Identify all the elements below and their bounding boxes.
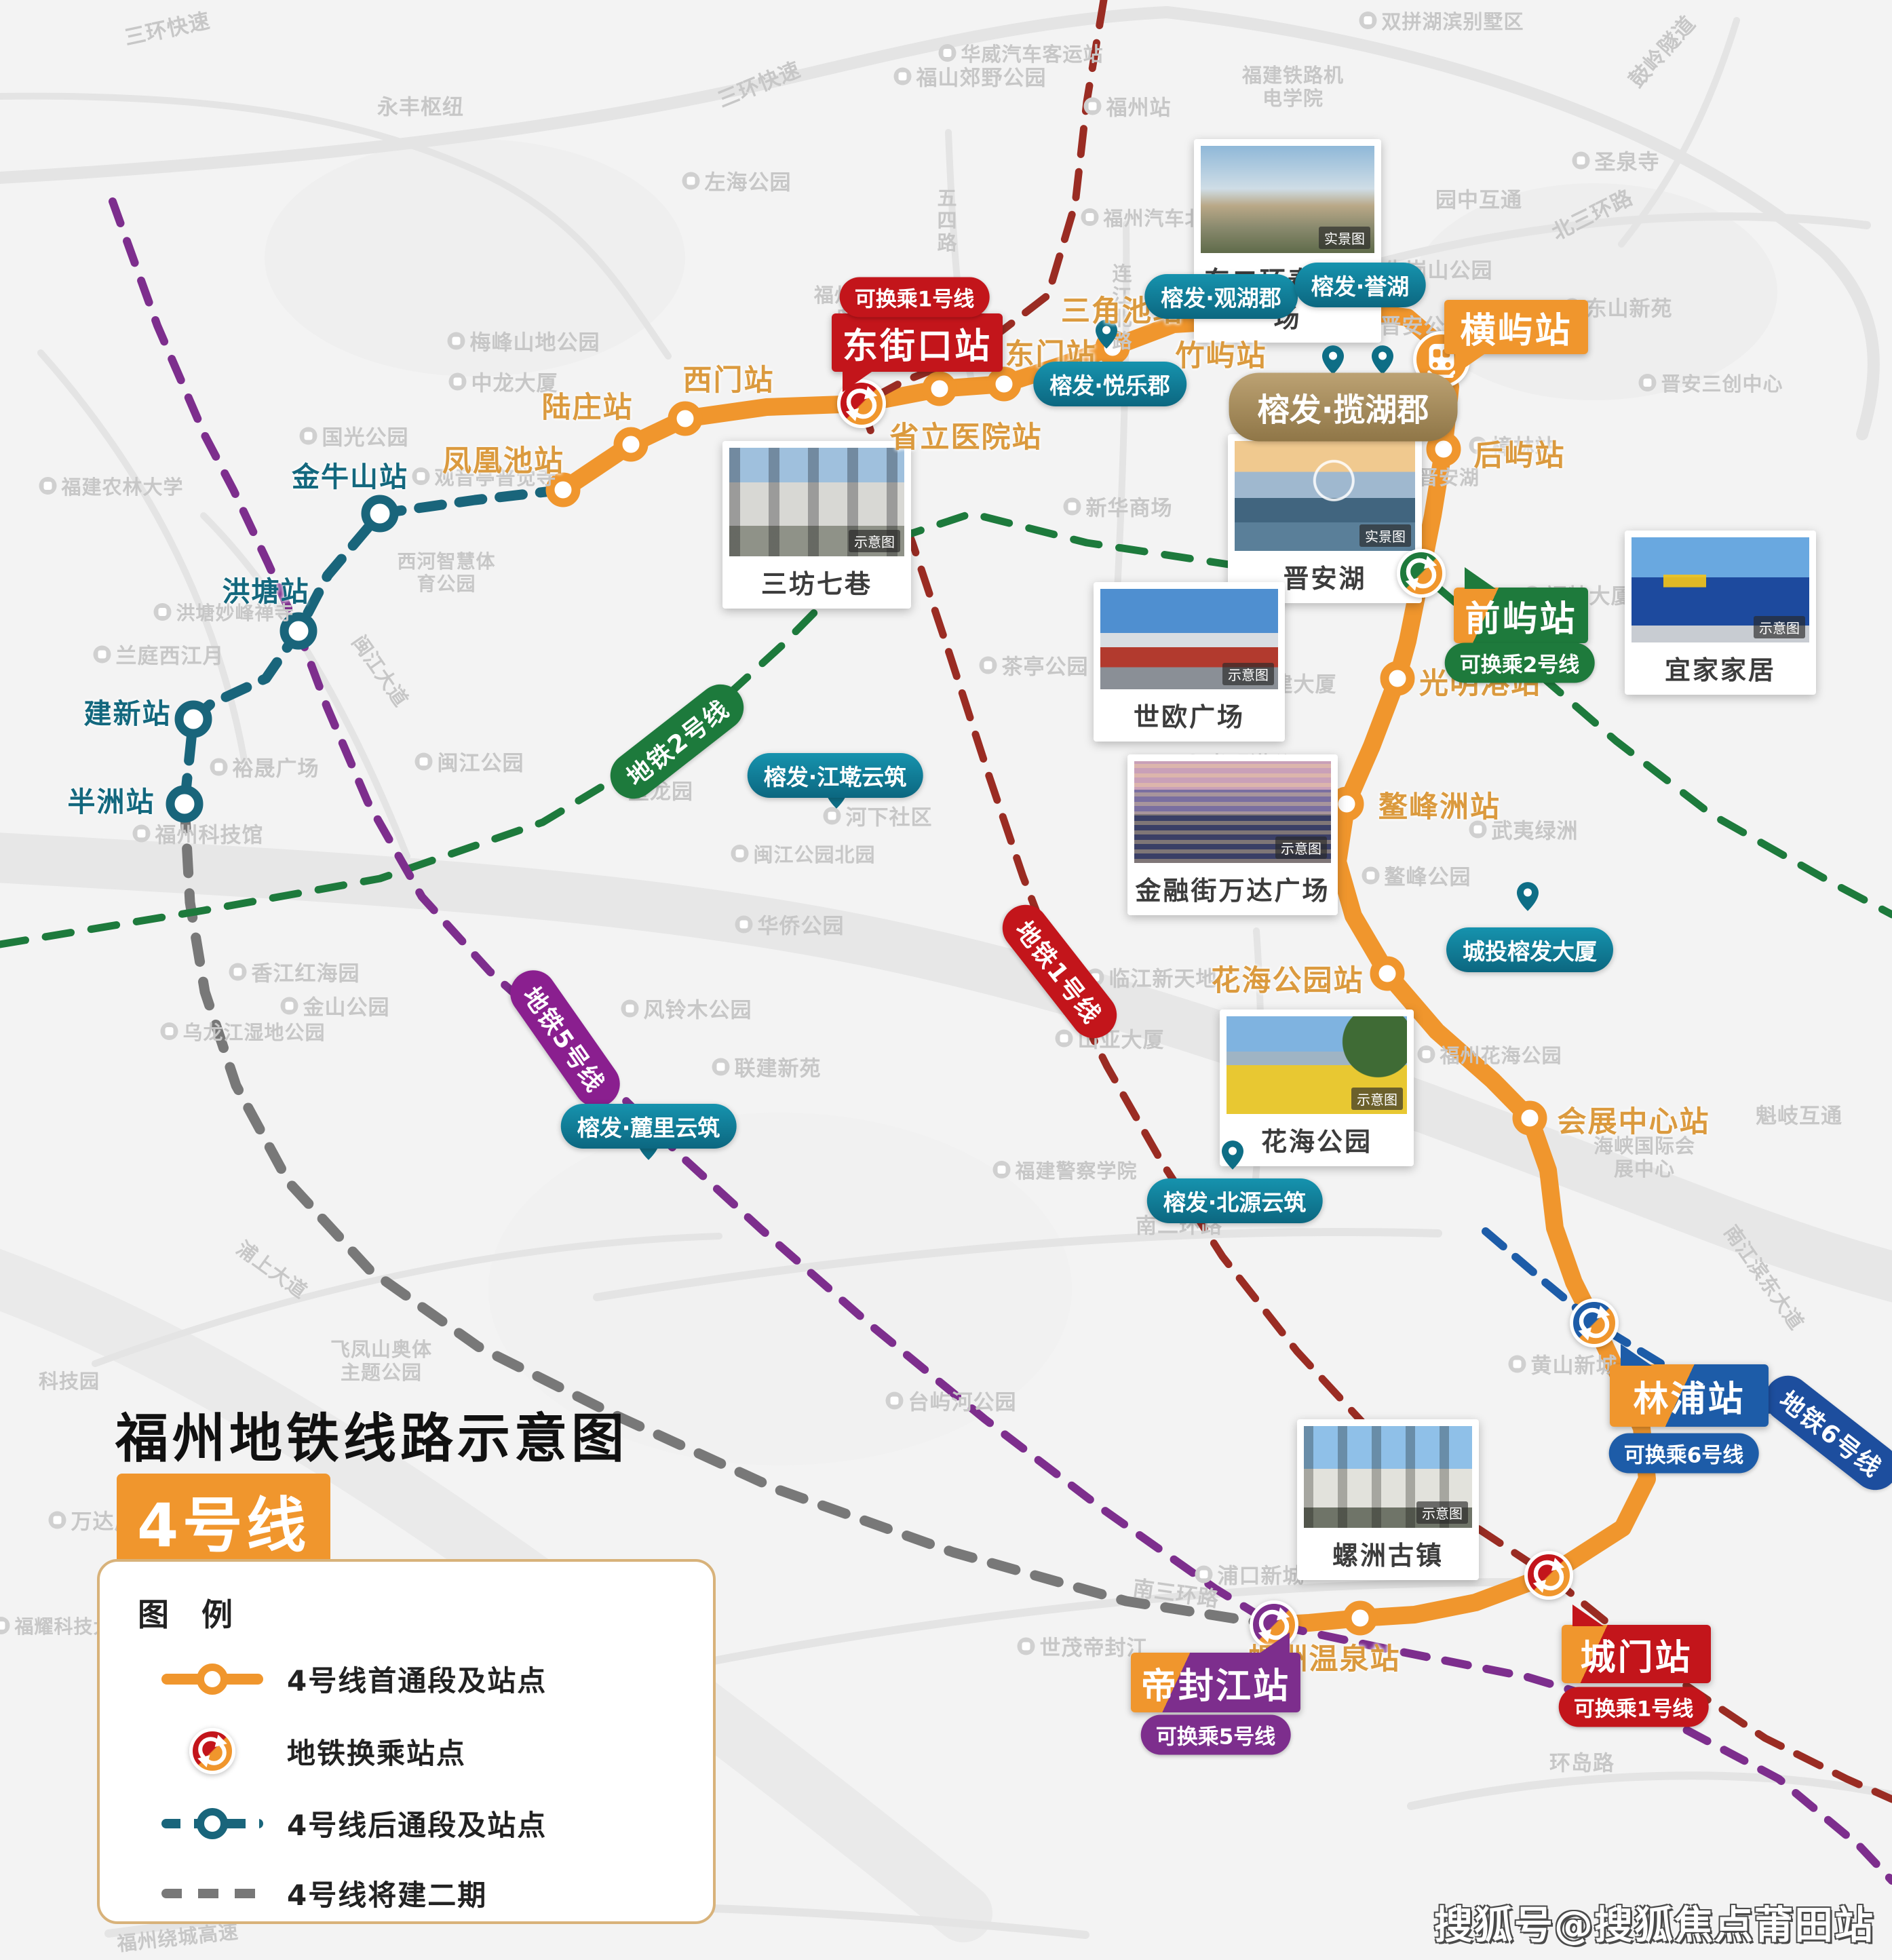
map-poi-label: 世茂帝封江 [1018, 1631, 1148, 1661]
poi-icon [712, 1058, 730, 1075]
poi-text: 华侨公园 [758, 909, 845, 940]
poi-icon [1509, 1355, 1526, 1372]
poi-text: 福州科技馆 [155, 818, 264, 849]
station-marker [170, 790, 199, 818]
poi-text: 国光公园 [322, 421, 409, 451]
poi-text: 乌龙江湿地公园 [182, 1017, 325, 1045]
transfer-pill: 可换乘2号线 [1445, 643, 1595, 683]
poi-icon [448, 332, 465, 349]
poi-icon [1064, 497, 1081, 515]
poi-icon [938, 44, 956, 62]
poi-text: 五四路 [931, 188, 960, 255]
station-callout: 林浦站 [1610, 1364, 1769, 1427]
property-badge: 榕发·揽湖郡 [1229, 373, 1458, 442]
poi-text: 新华商场 [1086, 491, 1173, 522]
poi-icon [1056, 1029, 1073, 1047]
poi-text: 西河智慧体育公园 [397, 550, 495, 595]
map-poi-label: 晋安湖 [1418, 462, 1480, 491]
legend-items: 4号线首通段及站点地铁换乘站点4号线后通段及站点4号线将建二期 [138, 1658, 675, 1914]
station-label: 陆庄站 [542, 384, 634, 426]
map-poi-label: 风铃木公园 [621, 993, 752, 1024]
photo-card: 示意图宜家家居 [1625, 531, 1816, 695]
photo-image: 示意图 [1134, 761, 1331, 863]
poi-text: 黄山新城 [1531, 1349, 1618, 1379]
legend-marker-line-dash-gray [138, 1889, 287, 1898]
station-marker [618, 431, 644, 457]
map-poi-label: 永丰枢纽 [377, 90, 464, 121]
poi-icon [731, 845, 748, 862]
station-label: 金牛山站 [292, 454, 408, 495]
poi-icon [153, 603, 171, 621]
map-poi-label: 福建警察学院 [992, 1155, 1137, 1184]
callout-pointer [1465, 567, 1496, 589]
photo-tag: 示意图 [1754, 616, 1805, 638]
map-poi-label: 福建农林大学 [39, 472, 183, 500]
property-badge: 榕发·江墘云筑 [748, 753, 923, 798]
poi-icon [1359, 12, 1376, 29]
poi-icon [300, 427, 317, 444]
map-poi-label: 左海公园 [682, 166, 792, 196]
property-badge: 榕发·誉湖 [1295, 263, 1426, 307]
map-poi-label: 临江新天地 [1087, 962, 1218, 993]
poi-icon [229, 963, 247, 980]
map-poi-label: 五四路 [931, 188, 960, 255]
station-label: 建新站 [84, 691, 172, 731]
photo-card: 示意图螺洲古镇 [1297, 1419, 1479, 1580]
station-label: 会展中心站 [1558, 1098, 1710, 1140]
map-poi-label: 黄山新城 [1509, 1349, 1618, 1379]
poi-text: 东山新苑 [1586, 292, 1673, 322]
station-label: 花海公园站 [1212, 957, 1364, 999]
transfer-station-icon [1570, 1299, 1619, 1347]
photo-tag: 示意图 [1275, 837, 1327, 859]
poi-text: 闽江公园 [438, 746, 524, 777]
map-poi-label: 金山公园 [281, 991, 390, 1021]
poi-icon [415, 752, 433, 770]
map-poi-label: 环岛路 [1549, 1746, 1615, 1777]
station-label: 后屿站 [1474, 432, 1566, 474]
map-poi-label: 香江红海园 [229, 957, 360, 987]
station-label: 省立医院站 [890, 414, 1043, 456]
station-label: 半洲站 [68, 779, 155, 820]
poi-icon [682, 172, 700, 189]
location-pin-icon [1222, 1140, 1243, 1172]
map-poi-label: 西河智慧体育公园 [389, 550, 503, 595]
station-marker [1374, 961, 1400, 986]
poi-icon [133, 824, 151, 842]
photo-image: 实景图 [1201, 146, 1374, 253]
photo-image: 示意图 [1227, 1016, 1407, 1114]
poi-icon [1081, 208, 1098, 226]
photo-caption: 宜家家居 [1632, 642, 1809, 695]
photo-card: 示意图花海公园 [1220, 1010, 1414, 1166]
callout-pointer [1572, 1604, 1604, 1626]
map-poi-label: 闽江公园北园 [731, 839, 875, 868]
station-marker [179, 705, 208, 733]
map-poi-label: 新华商场 [1064, 491, 1173, 522]
station-callout: 横屿站 [1444, 300, 1588, 354]
photo-caption: 金融街万达广场 [1134, 863, 1331, 915]
station-callout: 帝封江站 [1131, 1653, 1300, 1712]
poi-text: 福建警察学院 [1015, 1155, 1137, 1184]
map-poi-label: 华威汽车客运站 [938, 39, 1103, 67]
map-poi-label: 科技园 [39, 1366, 100, 1394]
poi-text: 兰庭西江月 [116, 639, 225, 670]
poi-text: 海峡国际会展中心 [1594, 1134, 1695, 1180]
photo-image: 示意图 [1304, 1426, 1472, 1528]
watermark: 搜狐号@搜狐焦点莆田站 [1434, 1894, 1874, 1950]
transfer-station-icon [1397, 549, 1446, 598]
station-label: 竹屿站 [1176, 332, 1267, 374]
photo-image: 示意图 [1100, 589, 1278, 689]
station-label: 洪塘站 [223, 569, 310, 609]
photo-tag: 实景图 [1359, 524, 1411, 547]
poi-text: 临江新天地 [1109, 962, 1218, 993]
poi-text: 左海公园 [705, 166, 792, 196]
legend-marker-line-solid [138, 1674, 287, 1685]
poi-text: 晋安湖 [1418, 462, 1480, 491]
map-poi-label: 园中互通 [1435, 183, 1522, 214]
poi-text: 福州花海公园 [1440, 1040, 1562, 1069]
photo-caption: 花海公园 [1227, 1114, 1407, 1166]
map-poi-label: 茶亭公园 [980, 650, 1089, 680]
photo-tag: 示意图 [1416, 1501, 1468, 1524]
poi-icon [1638, 374, 1656, 391]
poi-icon [1417, 1045, 1435, 1063]
map-poi-label: 福建铁路机电学院 [1236, 64, 1350, 110]
station-callout: 东街口站 [832, 313, 1003, 372]
station-marker [927, 376, 952, 402]
poi-icon [886, 1391, 904, 1409]
map-poi-label: 飞凤山奥体主题公园 [324, 1338, 438, 1384]
poi-text: 闽江公园北园 [753, 839, 875, 868]
legend-marker-transfer [138, 1728, 287, 1774]
transfer-pill: 可换乘1号线 [1559, 1687, 1709, 1727]
poi-text: 永丰枢纽 [377, 90, 464, 121]
photo-image: 实景图 [1235, 441, 1415, 551]
poi-text: 福州站 [1106, 91, 1172, 121]
map-poi-label: 鳌峰公园 [1362, 860, 1471, 891]
poi-icon [449, 372, 467, 390]
legend-label: 4号线后通段及站点 [287, 1803, 547, 1844]
poi-icon [412, 467, 429, 485]
map-poi-label: 华侨公园 [735, 909, 845, 940]
page-title: 福州地铁线路示意图 [115, 1396, 628, 1472]
photo-card: 示意图金融街万达广场 [1127, 754, 1338, 915]
transfer-pill: 可换乘5号线 [1141, 1715, 1291, 1755]
property-badge: 城投榕发大厦 [1446, 927, 1613, 972]
poi-text: 武夷绿洲 [1492, 814, 1579, 845]
poi-icon [210, 758, 228, 775]
legend-label: 4号线将建二期 [287, 1872, 487, 1914]
legend-title: 图 例 [138, 1590, 675, 1635]
poi-text: 科技园 [39, 1366, 100, 1394]
station-callout: 城门站 [1562, 1625, 1711, 1683]
poi-text: 晋安三创中心 [1661, 368, 1783, 397]
transfer-station-icon [1524, 1551, 1573, 1600]
metro-map-infographic: 福州地铁线路示意图 4号线 图 例 4号线首通段及站点地铁换乘站点4号线后通段及… [0, 0, 1892, 1960]
poi-text: 双拼湖滨别墅区 [1381, 6, 1524, 35]
poi-text: 魁岐互通 [1756, 1099, 1842, 1130]
property-badge: 榕发·悦乐郡 [1033, 362, 1186, 406]
poi-text: 香江红海园 [252, 957, 360, 987]
poi-text: 福建农林大学 [61, 472, 183, 500]
station-marker [991, 371, 1017, 397]
legend-item: 4号线首通段及站点 [138, 1658, 675, 1699]
photo-tag: 示意图 [849, 530, 900, 552]
map-poi-label: 梅峰山地公园 [448, 326, 600, 356]
poi-icon [980, 656, 997, 674]
poi-text: 福建铁路机电学院 [1242, 64, 1344, 110]
photo-card: 示意图三坊七巷 [722, 441, 911, 609]
property-badge: 榕发·北源云筑 [1147, 1178, 1323, 1223]
photo-card: 示意图世欧广场 [1094, 582, 1285, 742]
transfer-pill: 可换乘6号线 [1609, 1434, 1759, 1474]
poi-icon [894, 67, 912, 85]
poi-icon [621, 999, 639, 1017]
photo-caption: 螺洲古镇 [1304, 1528, 1472, 1580]
property-badge: 榕发·观湖郡 [1144, 274, 1298, 319]
poi-icon [1084, 97, 1102, 115]
station-marker [1347, 1605, 1373, 1631]
legend-label: 4号线首通段及站点 [287, 1658, 547, 1699]
poi-text: 鳌峰公园 [1385, 860, 1471, 891]
station-label: 鳌峰洲站 [1378, 784, 1501, 826]
map-poi-label: 乌龙江湿地公园 [160, 1017, 325, 1045]
poi-icon [1362, 866, 1380, 884]
map-poi-label: 晋安三创中心 [1638, 368, 1783, 397]
map-poi-label: 海峡国际会展中心 [1587, 1134, 1701, 1180]
poi-icon [1572, 151, 1590, 169]
poi-icon [39, 477, 56, 495]
map-poi-label: 福州科技馆 [133, 818, 264, 849]
poi-icon [49, 1511, 66, 1529]
map-poi-label: 国光公园 [300, 421, 409, 451]
poi-text: 园中互通 [1435, 183, 1522, 214]
poi-icon [281, 997, 298, 1014]
poi-text: 华威汽车客运站 [961, 39, 1103, 67]
photo-image: 示意图 [1632, 537, 1809, 642]
transfer-pill: 可换乘1号线 [840, 277, 990, 318]
poi-text: 浦口新城 [1218, 1559, 1305, 1590]
legend-transfer-icon [189, 1728, 235, 1774]
poi-text: 金山公园 [303, 991, 390, 1021]
map-poi-label: 福州花海公园 [1417, 1040, 1562, 1069]
map-poi-label: 魁岐互通 [1756, 1099, 1842, 1130]
photo-caption: 世欧广场 [1100, 689, 1278, 742]
station-label: 西门站 [683, 357, 775, 399]
location-pin-icon [1517, 882, 1539, 914]
map-poi-label: 闽江公园 [415, 746, 524, 777]
property-badge: 榕发·麓里云筑 [561, 1104, 737, 1149]
poi-text: 圣泉寺 [1595, 145, 1660, 176]
poi-text: 茶亭公园 [1002, 650, 1089, 680]
station-marker [1517, 1105, 1543, 1131]
legend-marker-line-dash-teal [138, 1819, 287, 1828]
photo-image: 示意图 [729, 448, 904, 556]
station-marker [1385, 666, 1410, 691]
station-marker [672, 406, 698, 431]
legend-label: 地铁换乘站点 [287, 1731, 466, 1772]
station-callout: 前屿站 [1454, 588, 1588, 643]
photo-tag: 示意图 [1222, 663, 1274, 685]
legend-item: 地铁换乘站点 [138, 1728, 675, 1774]
map-poi-label: 台屿河公园 [886, 1385, 1017, 1416]
poi-icon [94, 645, 111, 663]
callout-pointer [1258, 1632, 1290, 1654]
callout-pointer [1621, 1344, 1652, 1366]
poi-icon [1018, 1637, 1035, 1655]
map-poi-label: 福州站 [1084, 91, 1172, 121]
station-marker [366, 499, 394, 528]
photo-tag: 实景图 [1319, 227, 1370, 249]
poi-text: 环岛路 [1549, 1746, 1615, 1777]
photo-tag: 示意图 [1351, 1088, 1403, 1110]
poi-icon [992, 1161, 1010, 1178]
legend-box: 图 例 4号线首通段及站点地铁换乘站点4号线后通段及站点4号线将建二期 [97, 1559, 716, 1924]
poi-text: 梅峰山地公园 [470, 326, 600, 356]
poi-text: 风铃木公园 [644, 993, 752, 1024]
photo-card: 实景图晋安湖 [1228, 434, 1422, 603]
photo-caption: 三坊七巷 [729, 556, 904, 609]
line4-chip: 4号线 [117, 1474, 330, 1568]
map-poi-label: 圣泉寺 [1572, 145, 1660, 176]
callout-pointer [1455, 353, 1486, 374]
map-poi-label: 兰庭西江月 [94, 639, 225, 670]
poi-text: 联建新苑 [735, 1052, 822, 1082]
poi-icon [0, 1617, 9, 1634]
poi-icon [160, 1022, 178, 1040]
poi-text: 河下社区 [846, 801, 933, 831]
station-label: 凤凰池站 [442, 438, 564, 480]
callout-pointer [843, 370, 874, 392]
poi-text: 飞凤山奥体主题公园 [330, 1338, 432, 1384]
map-poi-label: 联建新苑 [712, 1052, 822, 1082]
poi-icon [735, 915, 753, 933]
poi-text: 台屿河公园 [908, 1385, 1017, 1416]
map-poi-label: 双拼湖滨别墅区 [1359, 6, 1524, 35]
legend-item: 4号线将建二期 [138, 1872, 675, 1914]
legend-item: 4号线后通段及站点 [138, 1803, 675, 1844]
poi-text: 裕晟广场 [233, 752, 320, 782]
map-poi-label: 裕晟广场 [210, 752, 320, 782]
